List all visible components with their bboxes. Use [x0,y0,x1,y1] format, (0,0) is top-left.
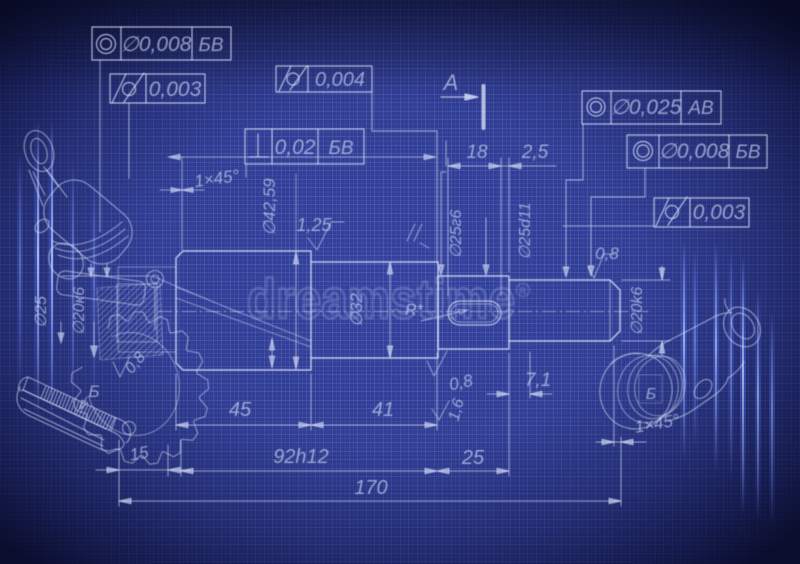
svg-text:7,1: 7,1 [525,370,551,391]
svg-text:25: 25 [461,447,485,469]
svg-text:∅0,008: ∅0,008 [659,140,730,163]
svg-text:∅25d11: ∅25d11 [517,202,534,259]
svg-text:2,5: 2,5 [521,142,549,163]
svg-text:R*: R* [405,302,424,319]
svg-text:∅0,008: ∅0,008 [121,33,192,56]
svg-text:170: 170 [354,477,387,499]
svg-text:∅0,025: ∅0,025 [611,96,682,119]
svg-text:0,004: 0,004 [315,69,365,91]
svg-text:БВ: БВ [328,138,353,159]
svg-text:∅25г6: ∅25г6 [448,210,465,259]
svg-text:∅20k6: ∅20k6 [629,287,646,336]
svg-text:1,25: 1,25 [296,215,332,235]
svg-text:Б: Б [88,382,99,401]
svg-text:АВ: АВ [687,98,714,119]
svg-text:БВ: БВ [198,35,223,56]
svg-text:БВ: БВ [735,142,760,163]
svg-text:41: 41 [372,399,394,421]
svg-text:Б: Б [646,386,656,403]
svg-text:∅42,59: ∅42,59 [260,178,279,236]
svg-text:0,003: 0,003 [693,201,746,224]
svg-text:92h12: 92h12 [273,446,329,468]
svg-text:∅32: ∅32 [347,293,366,327]
svg-text:∅25: ∅25 [33,296,50,328]
svg-text:∅20к6: ∅20к6 [71,287,88,335]
svg-text:0,8: 0,8 [595,244,619,263]
svg-text:0,003: 0,003 [149,78,202,101]
svg-text:A: A [442,70,459,95]
svg-text:R: R [520,286,527,296]
svg-text:45: 45 [229,399,252,421]
svg-text:15: 15 [128,442,150,464]
svg-text:18: 18 [466,142,488,163]
svg-text:0,02: 0,02 [275,136,316,159]
